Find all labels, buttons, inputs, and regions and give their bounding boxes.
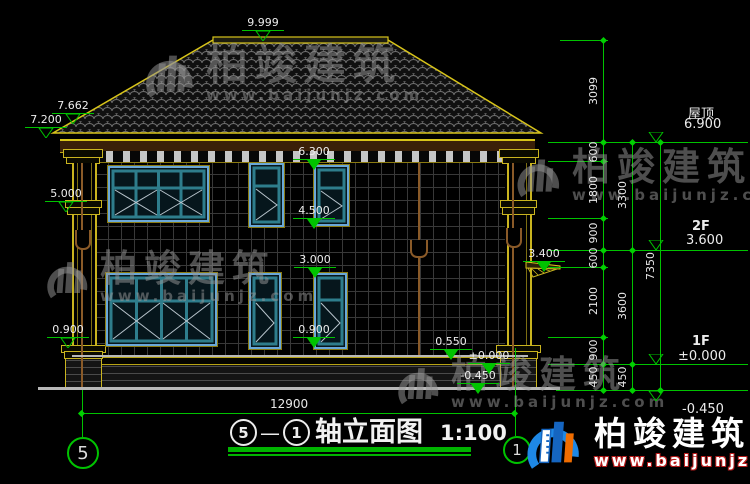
level-value: 3.000 (299, 254, 331, 266)
dim-label: 3099 (586, 61, 602, 121)
window-2f-left (107, 165, 210, 223)
dim-line-mid (632, 142, 633, 390)
right-level-1f-label: 1F (692, 334, 710, 349)
dim-tick (629, 247, 636, 254)
pilaster-right-molding-lower (502, 207, 535, 215)
title-separator: — (260, 421, 280, 445)
level-triangle-icon (307, 268, 323, 278)
level-marker-column-band: 5.000 (43, 188, 89, 212)
title-underline-thin (228, 454, 471, 456)
level-value: 0.900 (52, 324, 84, 336)
brand-text: 柏竣建筑 www.baijunjz.com (594, 417, 750, 470)
title-name: 轴立面图 (315, 419, 423, 446)
level-marker-sill-mid: 0.900 (291, 324, 337, 348)
bottom-dim-line (82, 413, 515, 414)
level-value: -0.450 (460, 370, 495, 382)
right-level-1f-value: ±0.000 (678, 349, 726, 364)
baijun-color-logo-icon (522, 412, 584, 474)
axis-line-1 (515, 348, 516, 436)
level-value: 5.000 (50, 188, 82, 200)
pilaster-left-pedestal (65, 358, 102, 390)
level-triangle-icon (648, 132, 664, 142)
brand-name: 柏竣建筑 (594, 417, 750, 451)
level-triangle-icon (306, 160, 322, 170)
level-marker-sill-left: 0.900 (45, 324, 91, 348)
window-2f-middle-1 (248, 162, 285, 228)
right-level-2f-value: 3.600 (686, 233, 723, 248)
level-marker-eave: 7.200 (23, 114, 69, 138)
roof-surface (53, 40, 541, 133)
level-value: ±0.000 (469, 350, 510, 362)
window-1f-left (105, 272, 218, 347)
brand-url: www.baijunjz.com (594, 451, 750, 470)
level-value: 7.662 (57, 100, 89, 112)
bottom-dim-label: 12900 (270, 397, 308, 411)
right-level-2f-label: 2F (692, 219, 710, 234)
level-marker-canopy: 3.400 (521, 248, 567, 272)
level-triangle-icon (58, 202, 74, 212)
level-marker-2f-sill: 4.500 (291, 205, 337, 229)
title-scale: 1:100 (440, 421, 507, 445)
title-underline-thick (228, 447, 471, 452)
level-marker-1f-head: 3.000 (292, 254, 338, 278)
level-triangle-icon (470, 384, 486, 394)
extension-line-1f-level (548, 364, 748, 365)
dim-label: 3300 (615, 165, 631, 225)
level-value: 0.550 (435, 336, 467, 348)
level-value: 0.900 (298, 324, 330, 336)
level-triangle-icon (38, 128, 54, 138)
level-value: 7.200 (30, 114, 62, 126)
watermark-url: www.baijunjz.com (451, 393, 668, 411)
level-marker-minus-building: -0.450 (455, 370, 501, 394)
watermark-right: 柏竣建筑 www.baijunjz.com (512, 148, 750, 204)
dim-tick (511, 410, 518, 417)
level-triangle-icon (306, 338, 322, 348)
level-triangle-icon (648, 391, 664, 401)
dim-label: 450 (615, 347, 631, 407)
level-value: 4.500 (298, 205, 330, 217)
drawing-title: 5 — 1 轴立面图 1:100 (230, 419, 507, 446)
level-value: 6.300 (298, 146, 330, 158)
dim-tick (629, 139, 636, 146)
dim-tick (78, 410, 85, 417)
level-marker-wall-top: 6.300 (291, 146, 337, 170)
window-1f-middle-1 (248, 272, 282, 350)
dim-line-outer (660, 142, 661, 390)
hip-roof (40, 33, 555, 138)
level-triangle-icon (536, 262, 552, 272)
title-axis-from: 5 (230, 419, 257, 446)
dim-label: 3600 (615, 276, 631, 336)
downspout-left-hopper (75, 230, 91, 250)
dim-label: 450 (586, 347, 602, 407)
level-triangle-icon (648, 240, 664, 250)
right-level-roof-value: 6.900 (684, 117, 721, 132)
downspout-middle-hopper (410, 240, 428, 258)
brand-logo-block: 柏竣建筑 www.baijunjz.com (522, 412, 750, 474)
downspout-right-hopper (506, 228, 522, 248)
level-triangle-icon (60, 338, 76, 348)
level-value: 9.999 (247, 17, 279, 29)
axis-bubble-5: 5 (67, 437, 99, 469)
dim-tick (600, 37, 607, 44)
downspout-middle (418, 163, 420, 357)
level-triangle-icon (255, 31, 271, 41)
level-triangle-icon (648, 354, 664, 364)
title-axis-to: 1 (283, 419, 310, 446)
elevation-drawing-canvas: 9.999 7.662 7.200 5.000 0.900 6.300 4.50… (0, 0, 750, 484)
level-value: 3.400 (528, 248, 560, 260)
level-marker-ridge: 9.999 (240, 17, 286, 41)
level-triangle-icon (306, 219, 322, 229)
level-triangle-icon (443, 350, 459, 360)
